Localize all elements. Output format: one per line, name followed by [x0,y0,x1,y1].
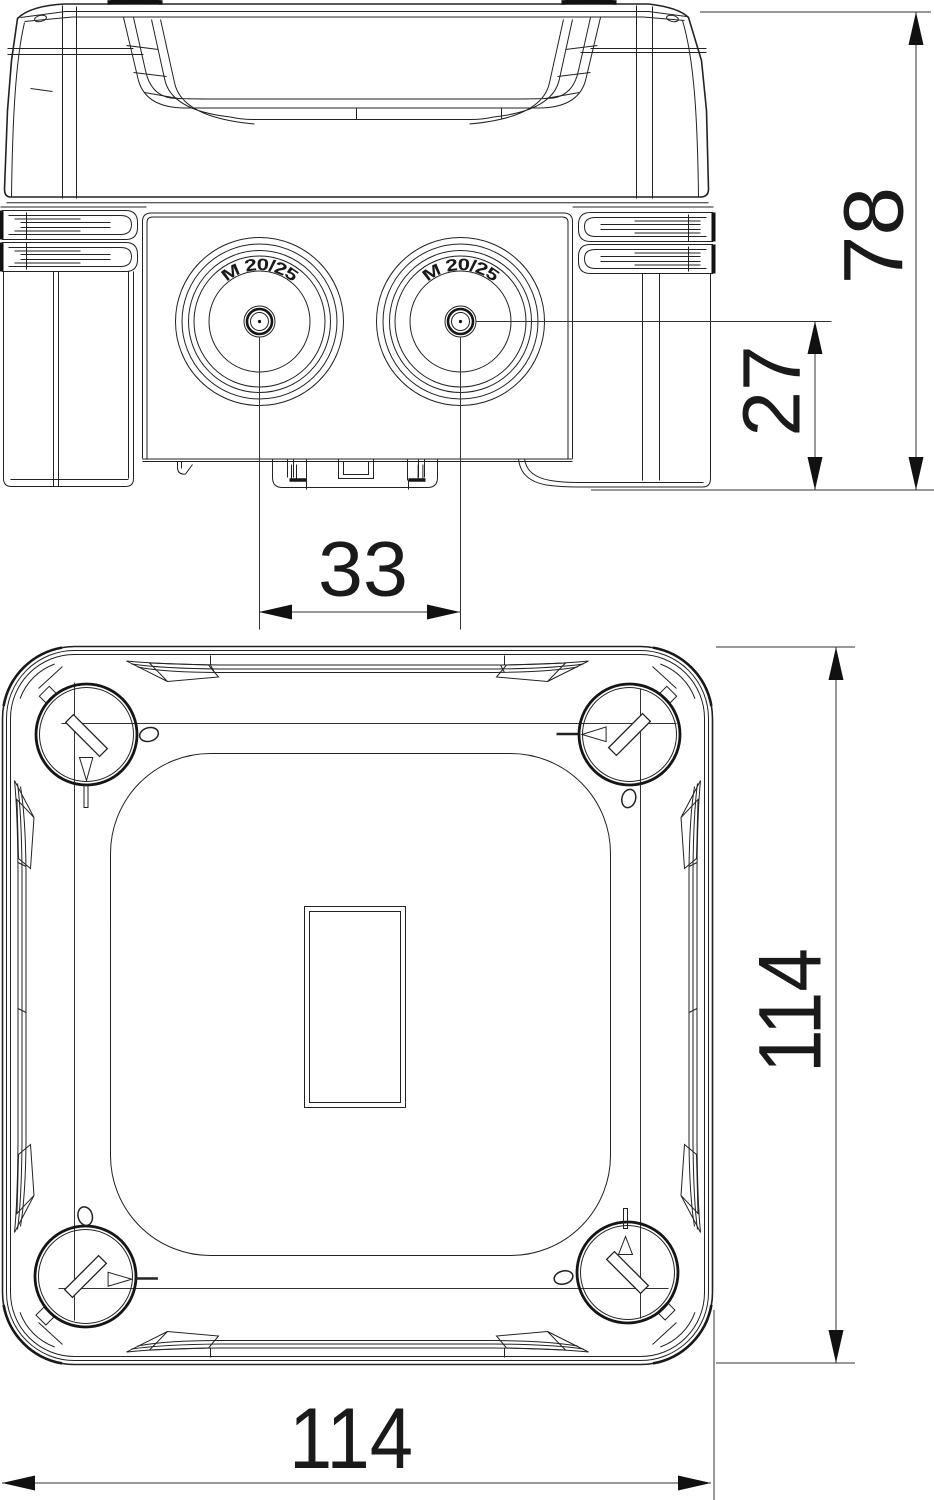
svg-text:114: 114 [289,1391,413,1487]
svg-text:33: 33 [318,525,408,613]
svg-text:78: 78 [827,187,921,285]
svg-text:114: 114 [740,948,840,1073]
svg-text:27: 27 [727,345,818,436]
